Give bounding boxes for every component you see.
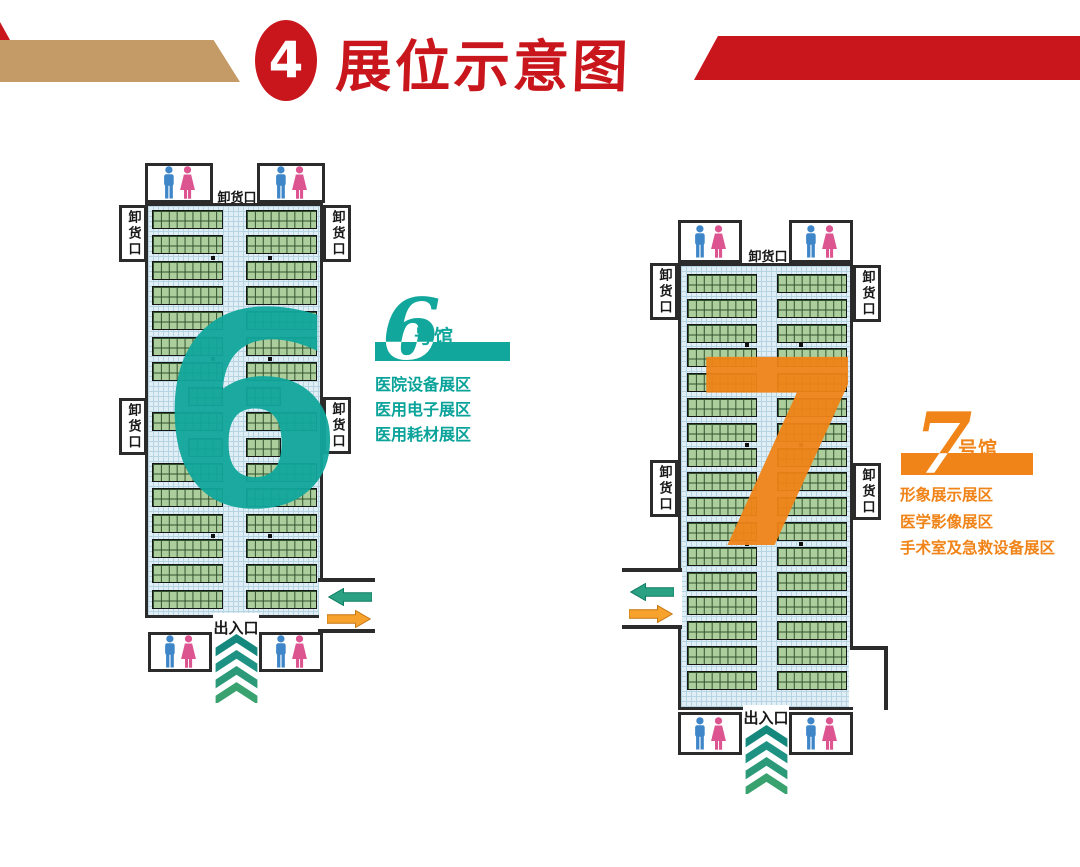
arrow-out-icon — [629, 605, 673, 623]
legend-hall-suffix: 号馆 — [958, 434, 998, 461]
booth-strip — [687, 671, 757, 690]
booth-strip — [687, 646, 757, 665]
restroom-male-female-icon — [269, 166, 313, 200]
legend-area-item: 手术室及急救设备展区 — [900, 535, 1055, 562]
booth-strip — [246, 235, 317, 254]
wall-opening — [319, 582, 325, 629]
legend-area-item: 医学影像展区 — [900, 509, 1055, 536]
slide: 4 展位示意图 卸货口 6 卸货口 卸货口 卸货口 卸货口 出入口 — [0, 0, 1080, 867]
loading-dock-box: 卸货口 — [650, 460, 678, 517]
vestibule-wall — [884, 646, 888, 710]
restroom-box — [148, 632, 212, 672]
booth-strip — [246, 590, 317, 609]
section-number-badge: 4 — [255, 20, 317, 101]
loading-dock-label-top: 卸货口 — [737, 246, 799, 265]
restroom-male-female-icon — [158, 635, 202, 669]
corridor-wall — [622, 568, 682, 572]
booth-strip — [687, 621, 757, 640]
corridor-wall — [622, 625, 682, 629]
booth-strip — [777, 621, 847, 640]
legend-area-item: 医用耗材展区 — [375, 422, 471, 447]
arrow-in-icon — [630, 583, 674, 601]
hall-7-floorplan: 卸货口 7 卸货口 卸货口 卸货口 卸货口 出入口 — [618, 215, 898, 815]
booth-strip — [246, 210, 317, 229]
restroom-box — [259, 632, 323, 672]
corridor-wall — [318, 629, 375, 633]
hall-7-number: 7 — [689, 327, 849, 585]
restroom-box — [678, 712, 742, 755]
loading-dock-label-top: 卸货口 — [206, 187, 268, 206]
hall-6-floorplan: 卸货口 6 卸货口 卸货口 卸货口 卸货口 出入口 — [112, 158, 382, 718]
restroom-male-female-icon — [269, 635, 313, 669]
legend-hall-suffix: 号馆 — [414, 322, 454, 349]
booth-strip — [777, 646, 847, 665]
header-right-ribbon — [694, 36, 1080, 80]
header: 4 展位示意图 — [0, 0, 1080, 120]
arrow-out-icon — [327, 610, 371, 628]
legend-area-list: 医院设备展区医用电子展区医用耗材展区 — [375, 372, 471, 447]
restroom-box — [678, 220, 742, 263]
legend-area-item: 医用电子展区 — [375, 397, 471, 422]
hall-6-building: 6 — [145, 203, 323, 618]
wall-opening — [676, 572, 682, 625]
wall-opening — [849, 650, 855, 707]
page-title: 展位示意图 — [335, 22, 633, 103]
restroom-male-female-icon — [688, 225, 732, 259]
hall-6-number: 6 — [158, 279, 318, 547]
restroom-male-female-icon — [157, 166, 201, 200]
entrance-chevrons-icon — [214, 633, 259, 703]
loading-dock-box: 卸货口 — [650, 263, 678, 320]
hall-6-legend: 6 6 号馆 医院设备展区医用电子展区医用耗材展区 — [370, 296, 570, 456]
corridor-wall — [318, 578, 375, 582]
loading-dock-box: 卸货口 — [119, 398, 147, 455]
booth-strip — [777, 671, 847, 690]
hall-7-legend: 7 7 号馆 形象展示展区医学影像展区手术室及急救设备展区 — [894, 406, 1080, 566]
header-left-ribbon — [0, 40, 240, 82]
restroom-male-female-icon — [799, 225, 843, 259]
booth-strip — [152, 590, 223, 609]
restroom-box — [789, 712, 853, 755]
hall-7-building: 7 — [678, 263, 853, 710]
restroom-male-female-icon — [688, 717, 732, 751]
entrance-chevrons-icon — [744, 724, 789, 794]
restroom-box — [145, 163, 213, 203]
loading-dock-box: 卸货口 — [323, 205, 351, 262]
header-corner-accent — [0, 22, 10, 40]
booth-strip — [152, 210, 223, 229]
legend-area-list: 形象展示展区医学影像展区手术室及急救设备展区 — [900, 482, 1055, 562]
vestibule-wall — [851, 646, 887, 650]
booth-strip — [687, 274, 757, 293]
arrow-in-icon — [328, 588, 372, 606]
booth-strip — [152, 235, 223, 254]
loading-dock-box: 卸货口 — [119, 205, 147, 262]
booth-strip — [777, 274, 847, 293]
restroom-male-female-icon — [799, 717, 843, 751]
